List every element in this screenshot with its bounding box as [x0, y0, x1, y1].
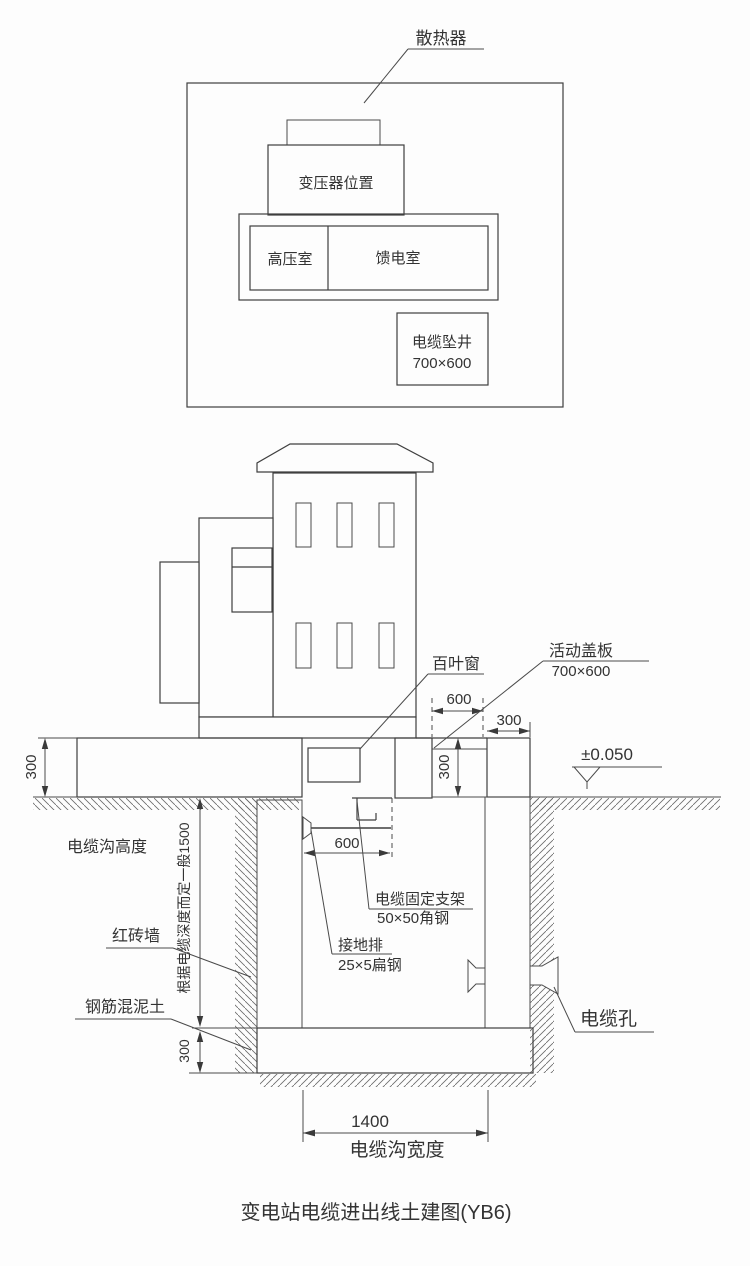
dim-cover-depth: 300	[436, 738, 461, 797]
dim-wall-width: 300	[487, 712, 530, 737]
grounding-bar-flange	[303, 817, 311, 839]
ground-hatch-below-floor	[260, 1074, 536, 1087]
feeder-room-label: 馈电室	[375, 250, 420, 267]
building-body	[273, 473, 416, 717]
plan-view: 变压器位置 高压室 馈电室 电缆坠井 700×600 散热器	[187, 29, 563, 407]
ground-bar-label-line2: 25×5扁钢	[338, 957, 402, 974]
ground-hatch-right	[532, 798, 720, 810]
cable-hole-label: 电缆孔	[580, 1008, 637, 1030]
cover-size: 700×600	[552, 663, 611, 680]
dim-trench-depth: 根据电缆深度而定一般1500	[176, 798, 203, 1027]
left-excavation-hatch	[235, 798, 257, 1073]
bracket-label-line1: 电缆固定支架	[375, 891, 465, 908]
drawing-title: 变电站电缆进出线土建图(YB6)	[240, 1201, 511, 1224]
dim-slab-thickness: 300	[23, 738, 48, 797]
trench-width-label: 电缆沟宽度	[349, 1139, 444, 1161]
dim-floor-thickness-text: 300	[176, 1039, 192, 1063]
right-brick-wall	[485, 797, 530, 1028]
transformer-label: 变压器位置	[298, 175, 373, 192]
radiator-label: 散热器	[416, 29, 467, 48]
hv-room-label: 高压室	[267, 251, 312, 268]
cable-hole-flare-left	[468, 960, 485, 992]
right-wall-top	[487, 738, 530, 797]
top-slab-pillar	[395, 738, 432, 798]
dim-trench-width-text: 1400	[351, 1112, 389, 1131]
level-mark-text: ±0.050	[581, 745, 633, 764]
elevation-view	[160, 444, 433, 738]
depth-note-text: 根据电缆深度而定一般1500	[176, 822, 192, 993]
dim-slab-thickness-text: 300	[23, 754, 40, 779]
left-brick-wall	[257, 800, 302, 1028]
dim-wall-width-text: 300	[496, 712, 521, 729]
plan-outline	[187, 83, 563, 407]
ground-bar-label-line1: 接地排	[338, 937, 383, 954]
concrete-floor-slab	[257, 1028, 533, 1073]
concrete-label: 钢筋混泥土	[85, 998, 165, 1016]
dim-cover-depth-text: 300	[436, 754, 453, 779]
dim-bracket-length: 600	[304, 835, 390, 856]
annex-panel	[232, 548, 272, 612]
brick-wall-label: 红砖墙	[112, 927, 160, 945]
dim-bracket-length-text: 600	[334, 835, 359, 852]
left-cabinet	[160, 562, 199, 703]
technical-drawing-canvas: 变压器位置 高压室 馈电室 电缆坠井 700×600 散热器	[0, 0, 750, 1266]
cable-shaft-size: 700×600	[413, 355, 472, 372]
level-mark: ±0.050	[572, 745, 662, 789]
building-base	[199, 717, 416, 738]
roof	[257, 444, 433, 472]
level-triangle-icon	[574, 767, 600, 782]
louver-label: 百叶窗	[432, 655, 480, 673]
cable-shaft-label: 电缆坠井	[412, 334, 472, 351]
dim-cover-width: 600	[432, 691, 483, 737]
concrete-callout: 钢筋混泥土	[75, 998, 251, 1050]
cover-label: 活动盖板	[549, 642, 613, 660]
cable-hole-callout: 电缆孔	[554, 987, 654, 1032]
left-concrete-slab	[77, 738, 302, 797]
trench-height-label: 电缆沟高度	[67, 838, 147, 856]
dim-cover-width-text: 600	[446, 691, 471, 708]
drawing-page: 变压器位置 高压室 馈电室 电缆坠井 700×600 散热器	[0, 0, 750, 1266]
louver-block	[308, 748, 360, 782]
dim-trench-width: 1400 电缆沟宽度	[303, 1090, 488, 1161]
bracket-label-line2: 50×50角钢	[377, 910, 449, 927]
